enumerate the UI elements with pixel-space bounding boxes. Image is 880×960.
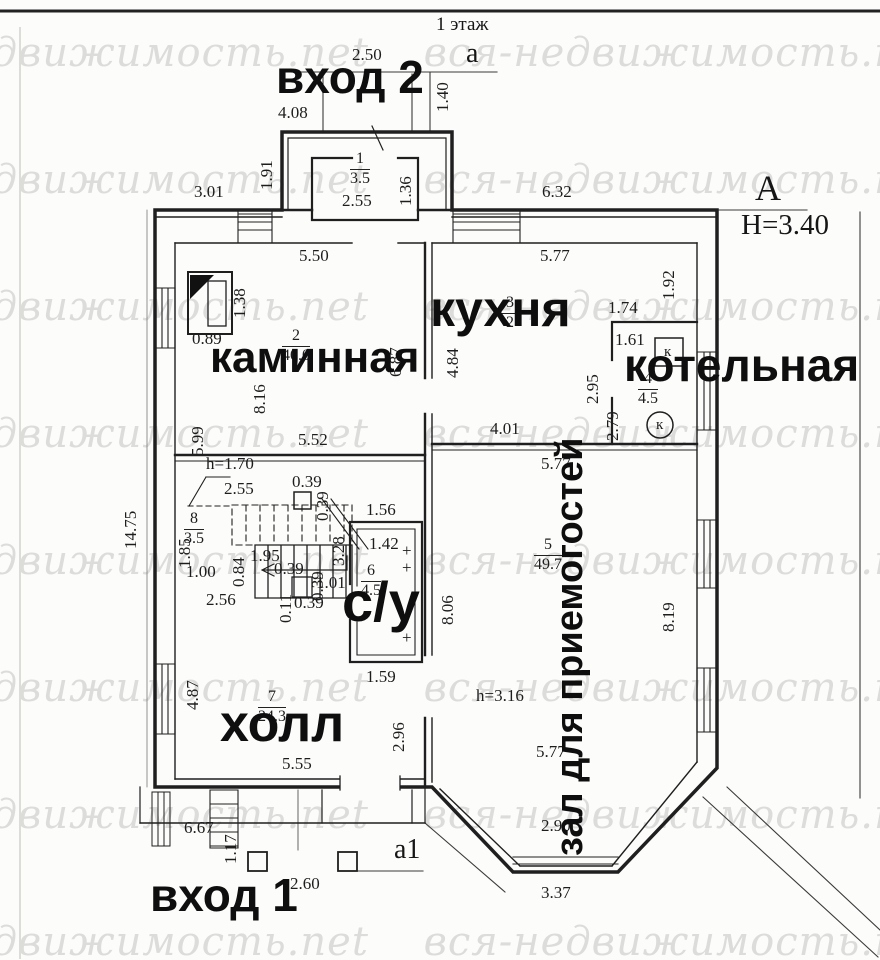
dimension-label: 0.39 xyxy=(274,560,304,577)
floor-title: 1 этаж xyxy=(436,14,489,36)
dimension-label: h=3.16 xyxy=(476,687,524,704)
dimension-label: 2.96 xyxy=(390,722,407,752)
dimensions-layer: 2.504.081.401.913.012.551.366.325.501.38… xyxy=(0,0,880,960)
dimension-label: 1.42 xyxy=(369,535,399,552)
dimension-label: 2.55 xyxy=(342,192,372,209)
dimension-label: 1.40 xyxy=(434,82,451,112)
dimension-label: 1.74 xyxy=(608,299,638,316)
axis-a-top: a xyxy=(466,40,478,68)
kaminnaya-label: каминная xyxy=(210,336,419,380)
dimension-label: 5.77 xyxy=(540,247,570,264)
entrance-1-label: вход 1 xyxy=(150,872,298,918)
kitchen-label: кухня xyxy=(430,284,571,334)
boiler-label: котельная xyxy=(624,342,859,388)
dimension-label: 4.87 xyxy=(184,680,201,710)
room-number: 1 xyxy=(350,150,370,170)
boiler-circle-letter: к xyxy=(656,417,663,434)
dimension-label: 1.56 xyxy=(366,501,396,518)
dimension-label: 8.19 xyxy=(660,602,677,632)
dimension-label: 4.08 xyxy=(278,104,308,121)
dimension-label: 14.75 xyxy=(122,511,139,549)
dimension-label: 3.28 xyxy=(330,536,347,566)
dimension-label: h=1.70 xyxy=(206,455,254,472)
dimension-label: 5.55 xyxy=(282,755,312,772)
dimension-label: 2.55 xyxy=(224,480,254,497)
room-area: 3.5 xyxy=(350,170,370,188)
floorplan-page: вся-недвижимость.net вся-недвижимость.ne… xyxy=(0,0,880,960)
dimension-label: 1.38 xyxy=(231,288,248,318)
room-area: 3.5 xyxy=(184,530,204,548)
zal-label: зал для приемогостей xyxy=(551,438,589,856)
dimension-label: 2.95 xyxy=(584,374,601,404)
dimension-label: 0.39 xyxy=(314,491,331,521)
entrance-2-label: вход 2 xyxy=(276,54,424,100)
dimension-label: 8.16 xyxy=(251,384,268,414)
dimension-label: 2.79 xyxy=(604,411,621,441)
axis-a1-bottom: a1 xyxy=(394,836,420,864)
dimension-label: 5.99 xyxy=(189,426,206,456)
dimension-label: 2.56 xyxy=(206,591,236,608)
room-fraction-tambour: 1 3.5 xyxy=(350,150,370,188)
dimension-label: + xyxy=(402,542,412,559)
dimension-label: 5.50 xyxy=(299,247,329,264)
hall-label: холл xyxy=(220,698,344,750)
room-number: 8 xyxy=(184,510,204,530)
dimension-label: 1.59 xyxy=(366,668,396,685)
dimension-label: 8.06 xyxy=(439,595,456,625)
dimension-label: 1.36 xyxy=(397,176,414,206)
room-area: 4.5 xyxy=(638,390,658,408)
dimension-label: 0.84 xyxy=(230,557,247,587)
dimension-label: 6.32 xyxy=(542,183,572,200)
dimension-label: 1.00 xyxy=(186,563,216,580)
dimension-label: 3.01 xyxy=(194,183,224,200)
dimension-label: 0.11 xyxy=(277,594,294,623)
axis-A-right: А xyxy=(755,170,781,206)
height-note: Н=3.40 xyxy=(741,211,829,240)
dimension-label: 6.67 xyxy=(184,819,214,836)
dimension-label: 4.01 xyxy=(490,420,520,437)
room-fraction-stairs: 8 3.5 xyxy=(184,510,204,548)
bathroom-label: с/у xyxy=(342,574,420,630)
dimension-label: 1.17 xyxy=(222,834,239,864)
dimension-label: 1.92 xyxy=(660,270,677,300)
dimension-label: 3.37 xyxy=(541,884,571,901)
dimension-label: 0.39 xyxy=(292,473,322,490)
dimension-label: 1.91 xyxy=(258,160,275,190)
dimension-label: 5.52 xyxy=(298,431,328,448)
dimension-label: 4.84 xyxy=(444,348,461,378)
